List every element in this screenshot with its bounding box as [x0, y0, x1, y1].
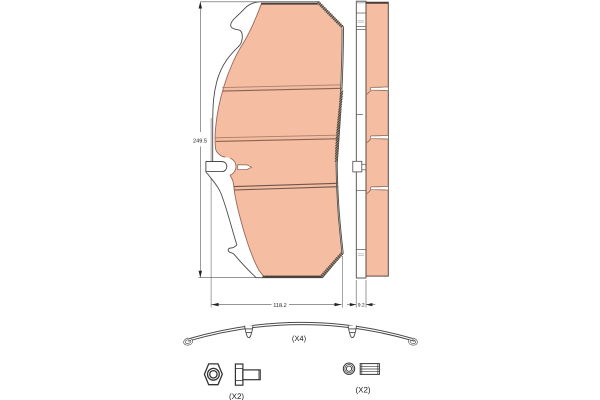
svg-text:9.2: 9.2: [358, 303, 365, 309]
svg-text:249.5: 249.5: [193, 138, 207, 144]
svg-text:(X4): (X4): [292, 334, 307, 343]
svg-text:(X2): (X2): [355, 386, 370, 395]
svg-text:(X2): (X2): [229, 392, 244, 400]
svg-text:118.2: 118.2: [273, 303, 287, 309]
